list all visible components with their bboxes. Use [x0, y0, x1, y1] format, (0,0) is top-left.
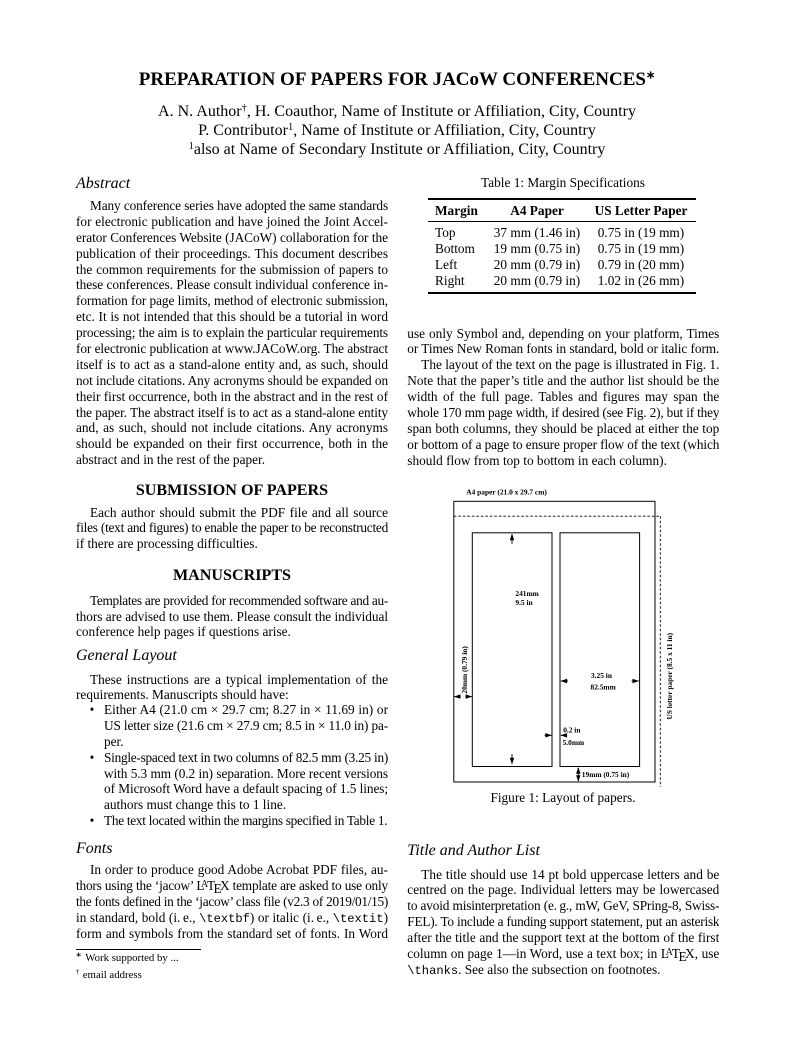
svg-text:82.5mm: 82.5mm: [591, 683, 617, 692]
svg-text:5.0mm: 5.0mm: [563, 738, 585, 747]
svg-text:9.5 in: 9.5 in: [515, 598, 532, 607]
svg-text:A4 paper (21.0 x 29.7 cm): A4 paper (21.0 x 29.7 cm): [466, 488, 547, 497]
svg-text:241mm: 241mm: [515, 589, 539, 598]
svg-text:0.2 in: 0.2 in: [563, 726, 580, 735]
svg-text:US letter paper (8.5 x 11 in): US letter paper (8.5 x 11 in): [665, 632, 674, 719]
svg-text:3.25 in: 3.25 in: [591, 671, 612, 680]
svg-text:20mm (0.79 in): 20mm (0.79 in): [460, 646, 469, 694]
svg-text:19mm (0.75 in): 19mm (0.75 in): [582, 770, 630, 779]
